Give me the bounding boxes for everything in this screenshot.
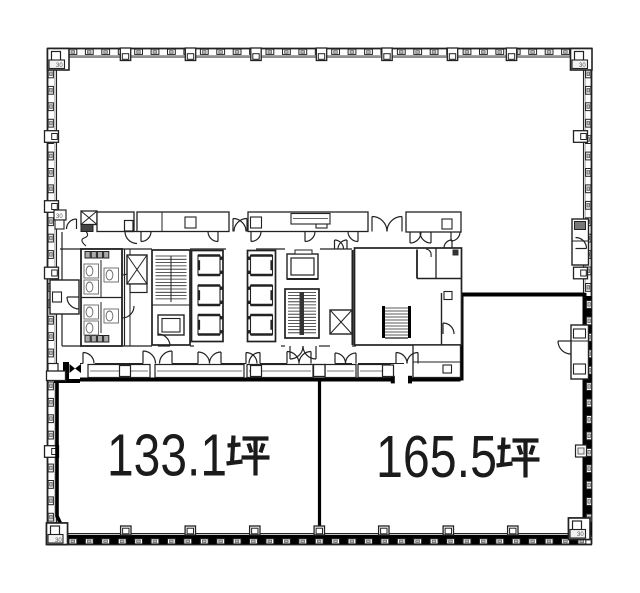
svg-text:30: 30 [579,63,586,69]
svg-text:30: 30 [577,532,584,538]
svg-text:30: 30 [56,63,63,69]
svg-text:30: 30 [55,538,62,544]
svg-text:30: 30 [56,214,63,220]
svg-text:165.5: 165.5 [376,424,497,490]
svg-text:133.1: 133.1 [107,423,227,489]
